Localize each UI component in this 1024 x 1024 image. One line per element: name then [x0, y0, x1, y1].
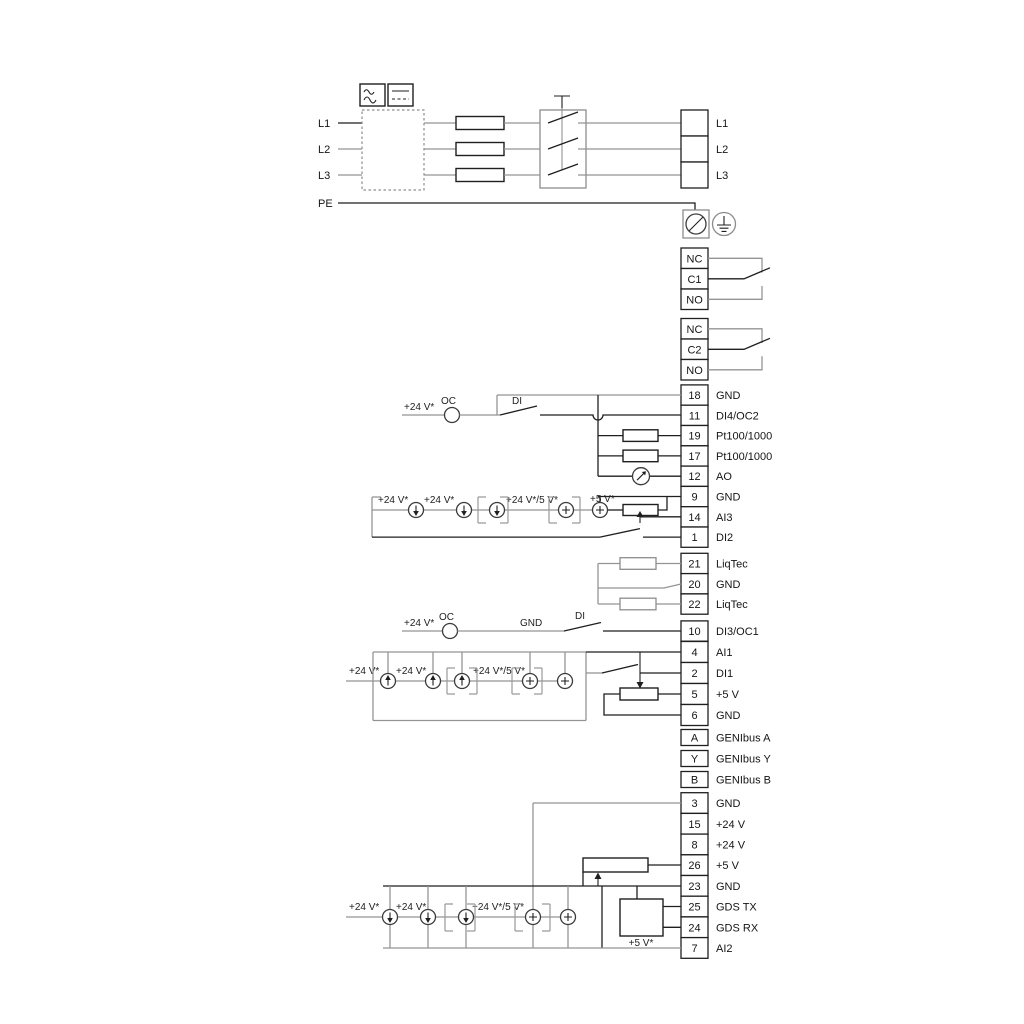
plus24-label: +24 V*	[404, 402, 434, 413]
terminal-label: L2	[716, 144, 728, 156]
terminal-num: 5	[691, 689, 697, 701]
terminal-num: 22	[688, 599, 700, 611]
terminal-label: GND	[716, 579, 741, 591]
io-block1: 18 11 19 17 12 9 14 1 GND DI4/OC2 Pt100/…	[681, 385, 772, 547]
current-sink-icon	[426, 674, 441, 689]
terminal-label: DI3/OC1	[716, 626, 759, 638]
di1-switch-icon	[602, 665, 638, 674]
terminal-label: AI2	[716, 943, 733, 955]
wiring-diagram: L1 L2 L3 PE	[0, 0, 1024, 1024]
potentiometer-icon	[583, 858, 648, 872]
terminal-num: 24	[688, 922, 700, 934]
oc-label: OC	[441, 396, 456, 407]
di4-wire-hop	[540, 415, 681, 420]
filter-to-fuse-wires	[424, 123, 456, 175]
earth-icon	[713, 213, 736, 236]
terminal-num: 9	[691, 492, 697, 504]
terminal-label: Pt100/1000	[716, 431, 772, 443]
ai2-supply-group: +24 V* +24 V* +24 V*/5 V*	[346, 886, 576, 948]
open-collector-icon	[445, 408, 460, 423]
relay1-c1: C1	[687, 274, 701, 286]
terminal-label: DI2	[716, 532, 733, 544]
gauge-icon	[633, 468, 650, 485]
pe-label: PE	[318, 198, 333, 210]
terminal-label: GND	[716, 390, 741, 402]
gds-tx-rx-wires	[663, 907, 681, 928]
terminal-label: +5 V	[716, 689, 740, 701]
terminal-label: +24 V	[716, 840, 746, 852]
open-collector-icon	[443, 624, 458, 639]
oc-label: OC	[439, 612, 454, 623]
main-switch-icon	[540, 96, 586, 188]
phase-l2-label: L2	[318, 144, 330, 156]
terminal-num: 8	[691, 840, 697, 852]
gds-sensor-icon	[620, 899, 663, 936]
terminal-num: 11	[689, 410, 700, 422]
terminal-label: +5 V	[716, 860, 740, 872]
plus24-label: +24 V*	[378, 495, 408, 506]
pe-wire	[338, 203, 695, 210]
terminal-num: 10	[688, 626, 700, 638]
potentiometer-icon	[620, 688, 658, 700]
terminal-num: 25	[688, 902, 700, 914]
terminal-label: +24 V	[716, 819, 746, 831]
plus24-label: +24 V*	[349, 902, 379, 913]
relay2-section: NC C2 NO	[681, 319, 770, 381]
terminal-num: 23	[688, 881, 700, 893]
terminal-label: AO	[716, 471, 732, 483]
terminal-label: AI1	[716, 647, 733, 659]
di-label: DI	[575, 611, 585, 622]
phase-l3-label: L3	[318, 170, 330, 182]
terminal-num: 26	[688, 860, 700, 872]
voltage-source-icon	[559, 503, 574, 518]
current-sink-icon	[455, 674, 470, 689]
terminal-label: LiqTec	[716, 559, 748, 571]
terminal-num: 7	[691, 943, 697, 955]
switch-to-terminal-wires	[578, 123, 681, 175]
current-sink-icon	[421, 910, 436, 925]
power-terminal-block: L1 L2 L3	[681, 110, 728, 188]
terminal-num: 2	[691, 668, 697, 680]
terminal-num: 15	[688, 819, 700, 831]
plus24-label: +24 V*	[349, 666, 379, 677]
voltage-source-icon	[561, 910, 576, 925]
terminal-label: GENIbus Y	[716, 754, 771, 766]
terminal-num: 4	[691, 647, 697, 659]
voltage-source-icon	[593, 503, 608, 518]
ai1-supply-group: +24 V* +24 V* +24 V*/5 V*	[346, 652, 681, 721]
relay1-section: NC C1 NO	[681, 248, 770, 310]
plus24-label: +24 V*	[396, 902, 426, 913]
current-sink-icon	[383, 910, 398, 925]
dc-symbol-icon	[388, 84, 413, 106]
source-bottom-stubs	[390, 925, 568, 949]
terminal-label: GND	[716, 710, 741, 722]
voltage-source-icon	[526, 910, 541, 925]
current-sink-icon	[381, 674, 396, 689]
di4-switch-icon	[500, 406, 537, 415]
relay2-nc: NC	[687, 324, 703, 336]
terminal-num: A	[691, 733, 699, 745]
filter-box	[362, 110, 424, 190]
relay1-switch-icon	[708, 268, 770, 279]
terminal-num: 12	[688, 471, 700, 483]
liqtec-sensor-icon	[620, 558, 656, 570]
pt100-sensor-icon	[623, 430, 658, 442]
terminal-label: DI1	[716, 668, 733, 680]
plus24-label: +24 V*	[396, 666, 426, 677]
plus24-label: +24 V*	[404, 618, 434, 629]
terminal-num: 18	[688, 390, 700, 402]
gnd18-wire	[497, 395, 681, 415]
liqtec-sensor-icon	[620, 598, 656, 610]
wiring-diagram-canvas: L1 L2 L3 PE	[0, 0, 1024, 1024]
terminal-label: GENIbus A	[716, 733, 771, 745]
relay1-no: NO	[686, 294, 703, 306]
terminal-label: L3	[716, 170, 728, 182]
terminal-label: GND	[716, 492, 741, 504]
gnd-label: GND	[520, 618, 542, 629]
l2-l3-wires	[338, 149, 362, 175]
terminal-label: GND	[716, 798, 741, 810]
relay2-switch-icon	[708, 338, 770, 349]
liqtec-block: 21 20 22 LiqTec GND LiqTec	[598, 553, 748, 614]
terminal-num: 20	[688, 579, 700, 591]
di3-switch-icon	[564, 623, 601, 632]
ac-symbol-icon	[360, 84, 385, 106]
terminal-label: GDS TX	[716, 902, 757, 914]
terminal-num: 6	[691, 710, 697, 722]
terminal-num: 19	[688, 431, 700, 443]
pot-wiper-arrow	[595, 873, 602, 880]
terminal-label: GND	[716, 881, 741, 893]
current-sink-icon	[459, 910, 474, 925]
io-block2: 4 2 5 6 AI1 DI1 +5 V GND	[681, 642, 741, 726]
gnd3-wire	[533, 803, 681, 910]
current-sink-icon	[490, 503, 505, 518]
terminal-label: L1	[716, 118, 728, 130]
terminal-label: GENIbus B	[716, 775, 771, 787]
terminal-num: 14	[688, 512, 700, 524]
terminal-num: 21	[688, 559, 700, 571]
io-block3: 3 15 8 26 23 25 24 7 GND +24 V +24 V +5 …	[681, 793, 759, 959]
relay2-c2: C2	[687, 344, 701, 356]
di2-switch-icon	[600, 529, 640, 538]
power-input-section: L1 L2 L3 PE	[318, 84, 736, 238]
current-sink-icon	[409, 503, 424, 518]
voltage-source-icon	[558, 674, 573, 689]
pe-terminal-icon	[683, 210, 709, 238]
genibus-block: A Y B GENIbus A GENIbus Y GENIbus B	[681, 730, 771, 788]
terminal-num: B	[691, 775, 698, 787]
voltage-source-icon	[523, 674, 538, 689]
plus24-label: +24 V*	[424, 495, 454, 506]
phase-l1-label: L1	[318, 118, 330, 130]
terminal-num: 1	[691, 532, 697, 544]
di-label: DI	[512, 396, 522, 407]
terminal-label: GDS RX	[716, 922, 759, 934]
terminal-label: AI3	[716, 512, 733, 524]
relay2-no: NO	[686, 365, 703, 377]
terminal-label: LiqTec	[716, 599, 748, 611]
terminal-num: Y	[691, 754, 699, 766]
di3-section: 10 DI3/OC1 +24 V* OC GND DI	[402, 611, 759, 641]
current-sink-icon	[457, 503, 472, 518]
terminal-num: 3	[691, 798, 697, 810]
pt100-sensor-icon	[623, 450, 658, 462]
relay1-nc: NC	[687, 253, 703, 265]
terminal-label: DI4/OC2	[716, 410, 759, 422]
fuse-icons	[456, 117, 504, 182]
terminal-num: 17	[688, 451, 700, 463]
terminal-label: Pt100/1000	[716, 451, 772, 463]
